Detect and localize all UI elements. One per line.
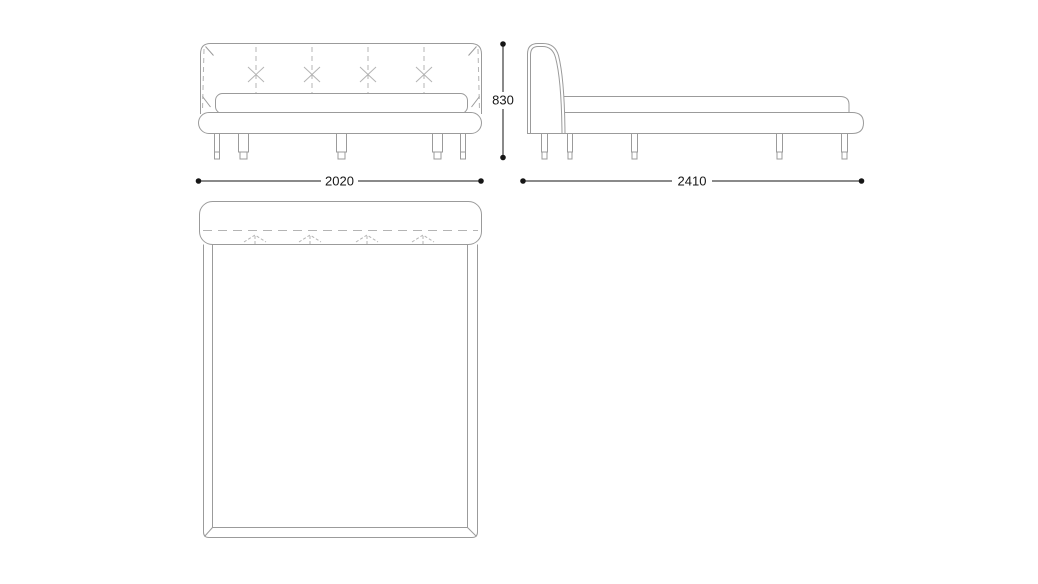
dimension-width: 2020 — [196, 174, 484, 189]
front-leg — [215, 134, 220, 160]
front-leg — [461, 134, 466, 160]
front-leg — [239, 134, 249, 160]
side-mattress — [563, 97, 849, 113]
dimension-width-label: 2020 — [325, 174, 354, 189]
plan-frame-outer — [204, 245, 478, 538]
side-leg — [568, 134, 573, 160]
front-mattress — [216, 94, 468, 114]
side-leg — [542, 134, 548, 160]
plan-frame-inner — [213, 245, 468, 528]
plan-view — [200, 202, 482, 538]
dimension-height-label: 830 — [492, 93, 514, 108]
side-leg — [842, 134, 848, 160]
plan-headboard — [200, 202, 482, 245]
dimension-endpoint-dot — [500, 41, 506, 47]
front-view — [199, 44, 482, 160]
side-view — [528, 44, 864, 160]
side-leg — [777, 134, 783, 160]
front-leg — [337, 134, 347, 160]
dimension-endpoint-dot — [196, 178, 202, 184]
technical-drawing-page: 2020 830 2410 — [0, 0, 1038, 584]
dimension-height: 830 — [492, 41, 514, 160]
dimension-depth-label: 2410 — [678, 174, 707, 189]
dimension-endpoint-dot — [520, 178, 526, 184]
technical-drawing-canvas: 2020 830 2410 — [0, 0, 1038, 584]
plan-mitre-joint — [468, 528, 477, 537]
dimension-depth: 2410 — [520, 174, 864, 189]
front-leg — [433, 134, 443, 160]
dimension-endpoint-dot — [500, 155, 506, 161]
side-base — [564, 113, 864, 134]
dimension-endpoint-dot — [478, 178, 484, 184]
front-base — [199, 113, 482, 134]
dimension-endpoint-dot — [859, 178, 865, 184]
side-headboard — [528, 44, 566, 134]
side-leg — [632, 134, 638, 160]
plan-mitre-joint — [205, 528, 213, 537]
